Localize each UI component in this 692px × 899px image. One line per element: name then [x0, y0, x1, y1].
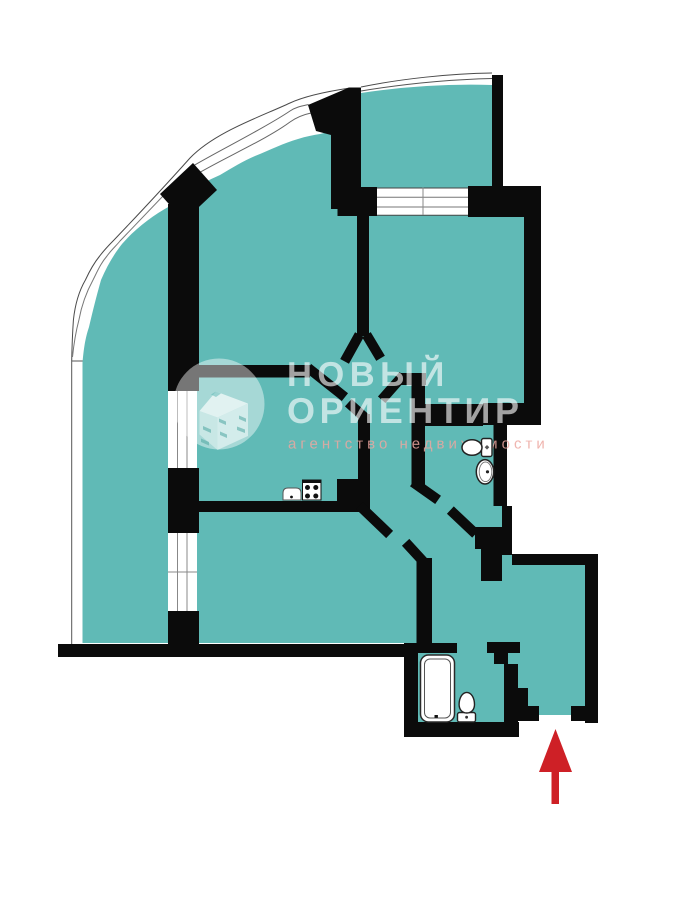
svg-text:агентство недвижимости: агентство недвижимости [288, 436, 549, 453]
svg-text:ОРИЕНТИР: ОРИЕНТИР [287, 390, 524, 431]
svg-text:НОВЫЙ: НОВЫЙ [287, 354, 450, 394]
